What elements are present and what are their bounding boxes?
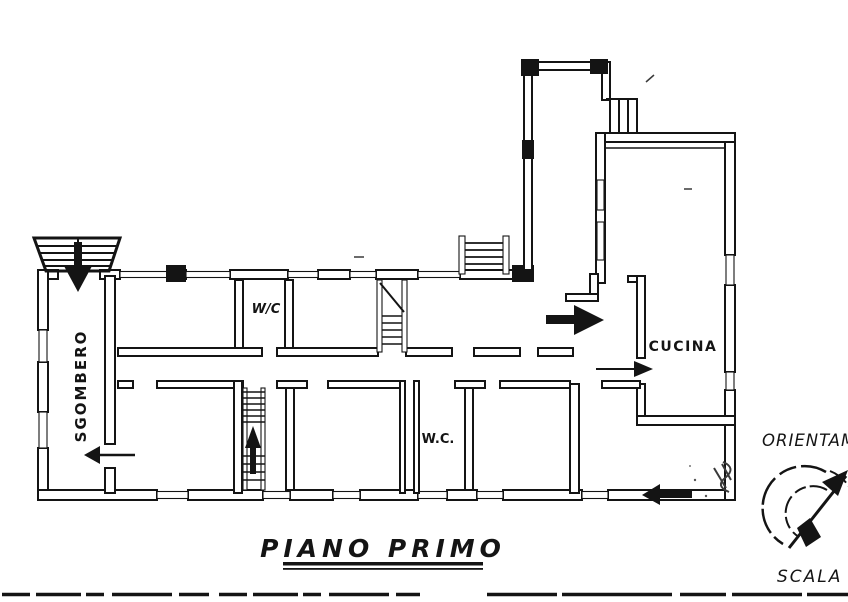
window-opening-left (39, 330, 47, 362)
page-title: PIANO PRIMO (260, 534, 506, 563)
orientation-label: ORIENTAM (762, 431, 848, 450)
main-internal-staircase (243, 388, 265, 490)
room-label-storage: SGOMBERO (72, 330, 90, 443)
upper-right-room-walls (566, 133, 735, 425)
scale-label: SCALA D (777, 567, 848, 587)
floor-plan-drawing: SGOMBERO W/C W.C. CUCINA PIANO PRIMO ORI… (0, 0, 848, 602)
orientation-annotation: ORIENTAM SCALA D (762, 431, 848, 587)
kitchen-door-arrow-icon (596, 361, 653, 377)
window-opening-right (726, 255, 734, 285)
entrance-down-arrow-icon (64, 242, 92, 292)
bottom-wall-left-arrow-icon (642, 484, 692, 505)
exterior-steps-upper (606, 99, 638, 133)
corridor-right-arrow-icon (546, 305, 604, 335)
interior-walls (105, 276, 640, 493)
window-opening-right (726, 372, 734, 390)
upper-internal-staircase (377, 280, 407, 352)
storage-door-arrow-icon (84, 446, 135, 464)
scanned-floor-plan-page: SGOMBERO W/C W.C. CUCINA PIANO PRIMO ORI… (0, 0, 848, 602)
exterior-staircase-top (459, 236, 509, 274)
wall-pier (166, 265, 186, 282)
room-label-kitchen: CUCINA (649, 339, 718, 355)
room-label-wc-lower: W.C. (422, 432, 455, 447)
room-label-wc-upper: W/C (252, 302, 281, 317)
compass-north-arrow-icon (763, 466, 848, 548)
tower-walls (521, 59, 638, 270)
title-underline (283, 562, 483, 566)
plan-title: PIANO PRIMO (260, 534, 506, 570)
window-opening-left (39, 412, 47, 448)
title-underline-thin (283, 568, 483, 570)
